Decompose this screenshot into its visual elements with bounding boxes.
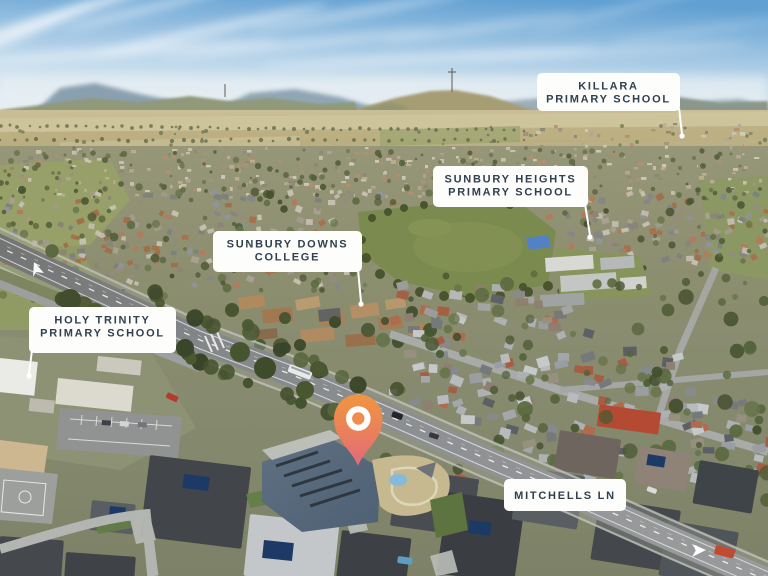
svg-text:SUNBURY HEIGHTS: SUNBURY HEIGHTS bbox=[445, 174, 577, 186]
svg-text:PRIMARY SCHOOL: PRIMARY SCHOOL bbox=[546, 94, 671, 106]
svg-text:PRIMARY SCHOOL: PRIMARY SCHOOL bbox=[40, 328, 165, 340]
svg-text:SUNBURY DOWNS: SUNBURY DOWNS bbox=[227, 239, 349, 251]
svg-text:HOLY TRINITY: HOLY TRINITY bbox=[54, 315, 150, 327]
svg-text:COLLEGE: COLLEGE bbox=[255, 252, 320, 264]
svg-text:MITCHELLS LN: MITCHELLS LN bbox=[514, 490, 616, 502]
svg-text:PRIMARY SCHOOL: PRIMARY SCHOOL bbox=[448, 187, 573, 199]
svg-text:KILLARA: KILLARA bbox=[578, 81, 639, 93]
